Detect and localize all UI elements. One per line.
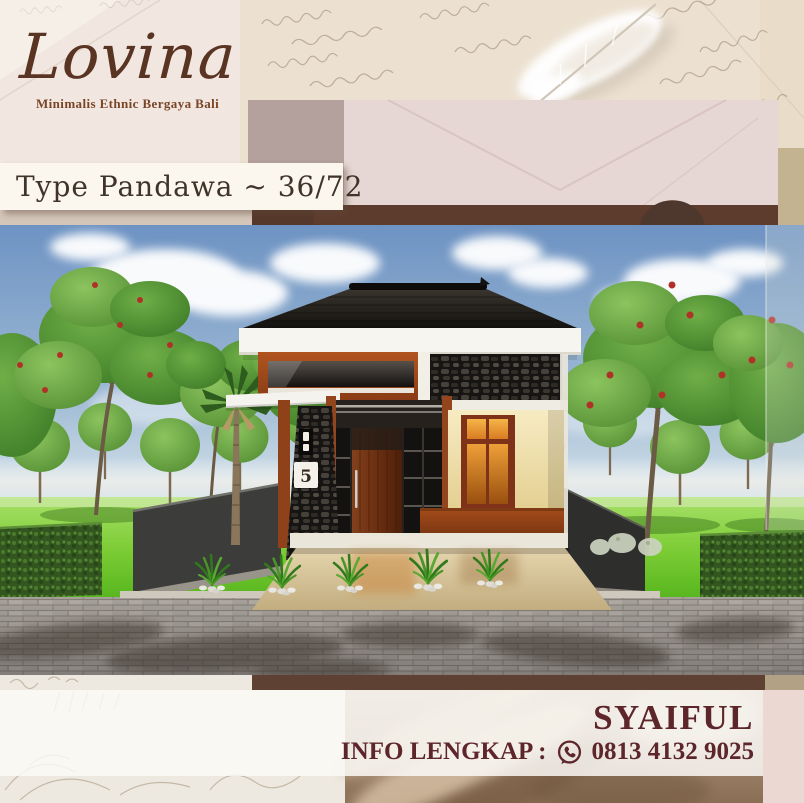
agent-name: SYAIFUL	[593, 700, 754, 736]
house-render: 5	[0, 225, 804, 675]
contact-info-row: INFO LENGKAP : 0813 4132 9025	[341, 738, 754, 766]
hedge-left	[0, 523, 102, 599]
brand-logo: Lovina Minimalis Ethnic Bergaya Bali	[20, 26, 270, 112]
stone-band	[430, 354, 562, 400]
type-banner: Type Pandawa ~ 36/72	[0, 163, 343, 210]
hedge-right	[700, 531, 804, 599]
bottom-brown-bar	[252, 674, 765, 690]
house-number: 5	[300, 467, 312, 487]
wainscot	[420, 508, 564, 533]
brand-name: Lovina	[18, 26, 271, 88]
lit-window	[457, 415, 519, 514]
whatsapp-icon	[556, 739, 583, 766]
house: 5	[226, 277, 581, 560]
contact-band: SYAIFUL INFO LENGKAP : 0813 4132 9025	[0, 690, 763, 776]
plinth-step	[290, 533, 568, 548]
fascia-band	[239, 328, 581, 354]
brand-tagline: Minimalis Ethnic Bergaya Bali	[36, 96, 270, 112]
info-label: INFO LENGKAP :	[341, 738, 547, 766]
pink-right-strip	[763, 690, 804, 803]
door-handle	[355, 470, 358, 508]
type-banner-label: Type Pandawa ~ 36/72	[16, 170, 363, 203]
phone-number: 0813 4132 9025	[592, 738, 755, 766]
house-number-sign: 5	[294, 462, 319, 489]
property-poster: 5	[0, 0, 804, 803]
